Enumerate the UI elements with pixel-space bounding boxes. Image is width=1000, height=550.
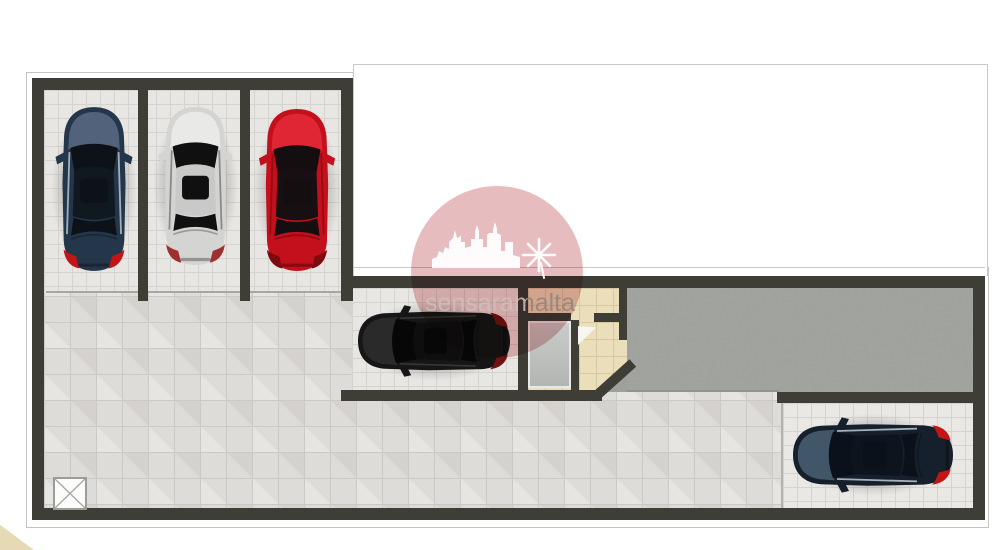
property-outline-left (26, 72, 27, 527)
car-darkblue-suv (789, 415, 957, 495)
bay-front-line (46, 291, 341, 293)
car-silver-car (154, 103, 237, 269)
property-outline-bottom (26, 527, 989, 528)
wall-bottom (32, 508, 985, 520)
driveway-ramp (627, 288, 973, 392)
property-outline-right (988, 267, 989, 527)
garage-floor-plan: sensaramalta (0, 0, 1000, 550)
castle-skyline-icon (432, 221, 520, 268)
shaft-x-marker (53, 477, 87, 510)
wall-lobby-stub (594, 313, 627, 322)
ramp-bottom-edge (627, 390, 779, 392)
wall-right (973, 276, 985, 520)
watermark-text: sensaramalta (416, 289, 584, 317)
car-navy-suv (52, 103, 136, 275)
property-outline-top (26, 72, 353, 73)
car-red-sports (254, 105, 340, 275)
windmill-icon (518, 237, 564, 279)
wall-top (32, 78, 353, 90)
wall-lobby-inner (571, 320, 579, 390)
